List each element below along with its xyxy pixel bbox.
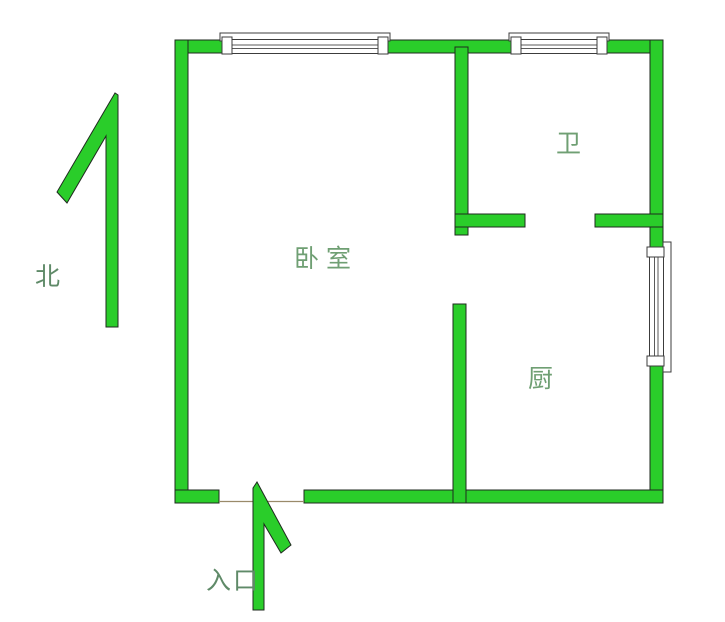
compass-label: 北 [35, 265, 60, 290]
wall-bathroom-bottom-right [595, 214, 663, 227]
window-outer-frame [663, 242, 671, 372]
window-body [650, 247, 664, 366]
window-jamb [597, 37, 607, 54]
window-jamb [511, 37, 521, 54]
arrows [57, 93, 291, 610]
window-body [222, 40, 388, 54]
wall-bottom-left-of-door [175, 490, 219, 503]
window-icon [509, 33, 609, 54]
north-arrow-icon [57, 93, 118, 327]
window-jamb [222, 37, 232, 54]
floorplan-page: 北 卧室 卫 厨 入口 [0, 0, 725, 622]
walls [175, 40, 663, 503]
wall-bathroom-bottom-left [455, 214, 525, 227]
room-label-kitchen: 厨 [528, 367, 553, 392]
room-label-bathroom: 卫 [556, 132, 581, 157]
window-jamb [647, 356, 664, 366]
window-icon [647, 242, 671, 372]
room-label-bedroom: 卧室 [294, 247, 358, 272]
window-jamb [647, 247, 664, 257]
window-body [511, 40, 607, 54]
floorplan-canvas [0, 0, 725, 622]
entrance-label: 入口 [206, 569, 260, 594]
wall-bottom-main [304, 490, 663, 503]
wall-left [175, 40, 188, 503]
window-jamb [378, 37, 388, 54]
wall-kitchen-divider-vertical [453, 304, 466, 503]
wall-bathroom-divider-vertical [455, 47, 468, 235]
window-icon [220, 33, 390, 54]
